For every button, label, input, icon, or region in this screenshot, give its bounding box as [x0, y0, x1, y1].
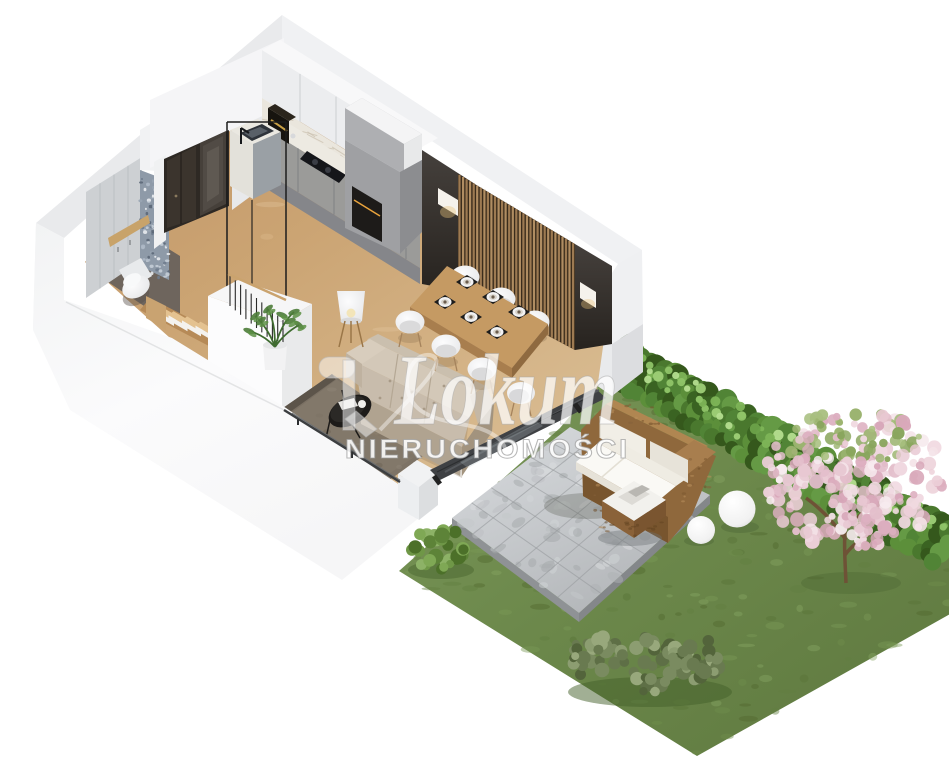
svg-text:Lokum: Lokum [393, 334, 618, 447]
svg-text:NIERUCHOMOŚCI: NIERUCHOMOŚCI [345, 434, 630, 464]
